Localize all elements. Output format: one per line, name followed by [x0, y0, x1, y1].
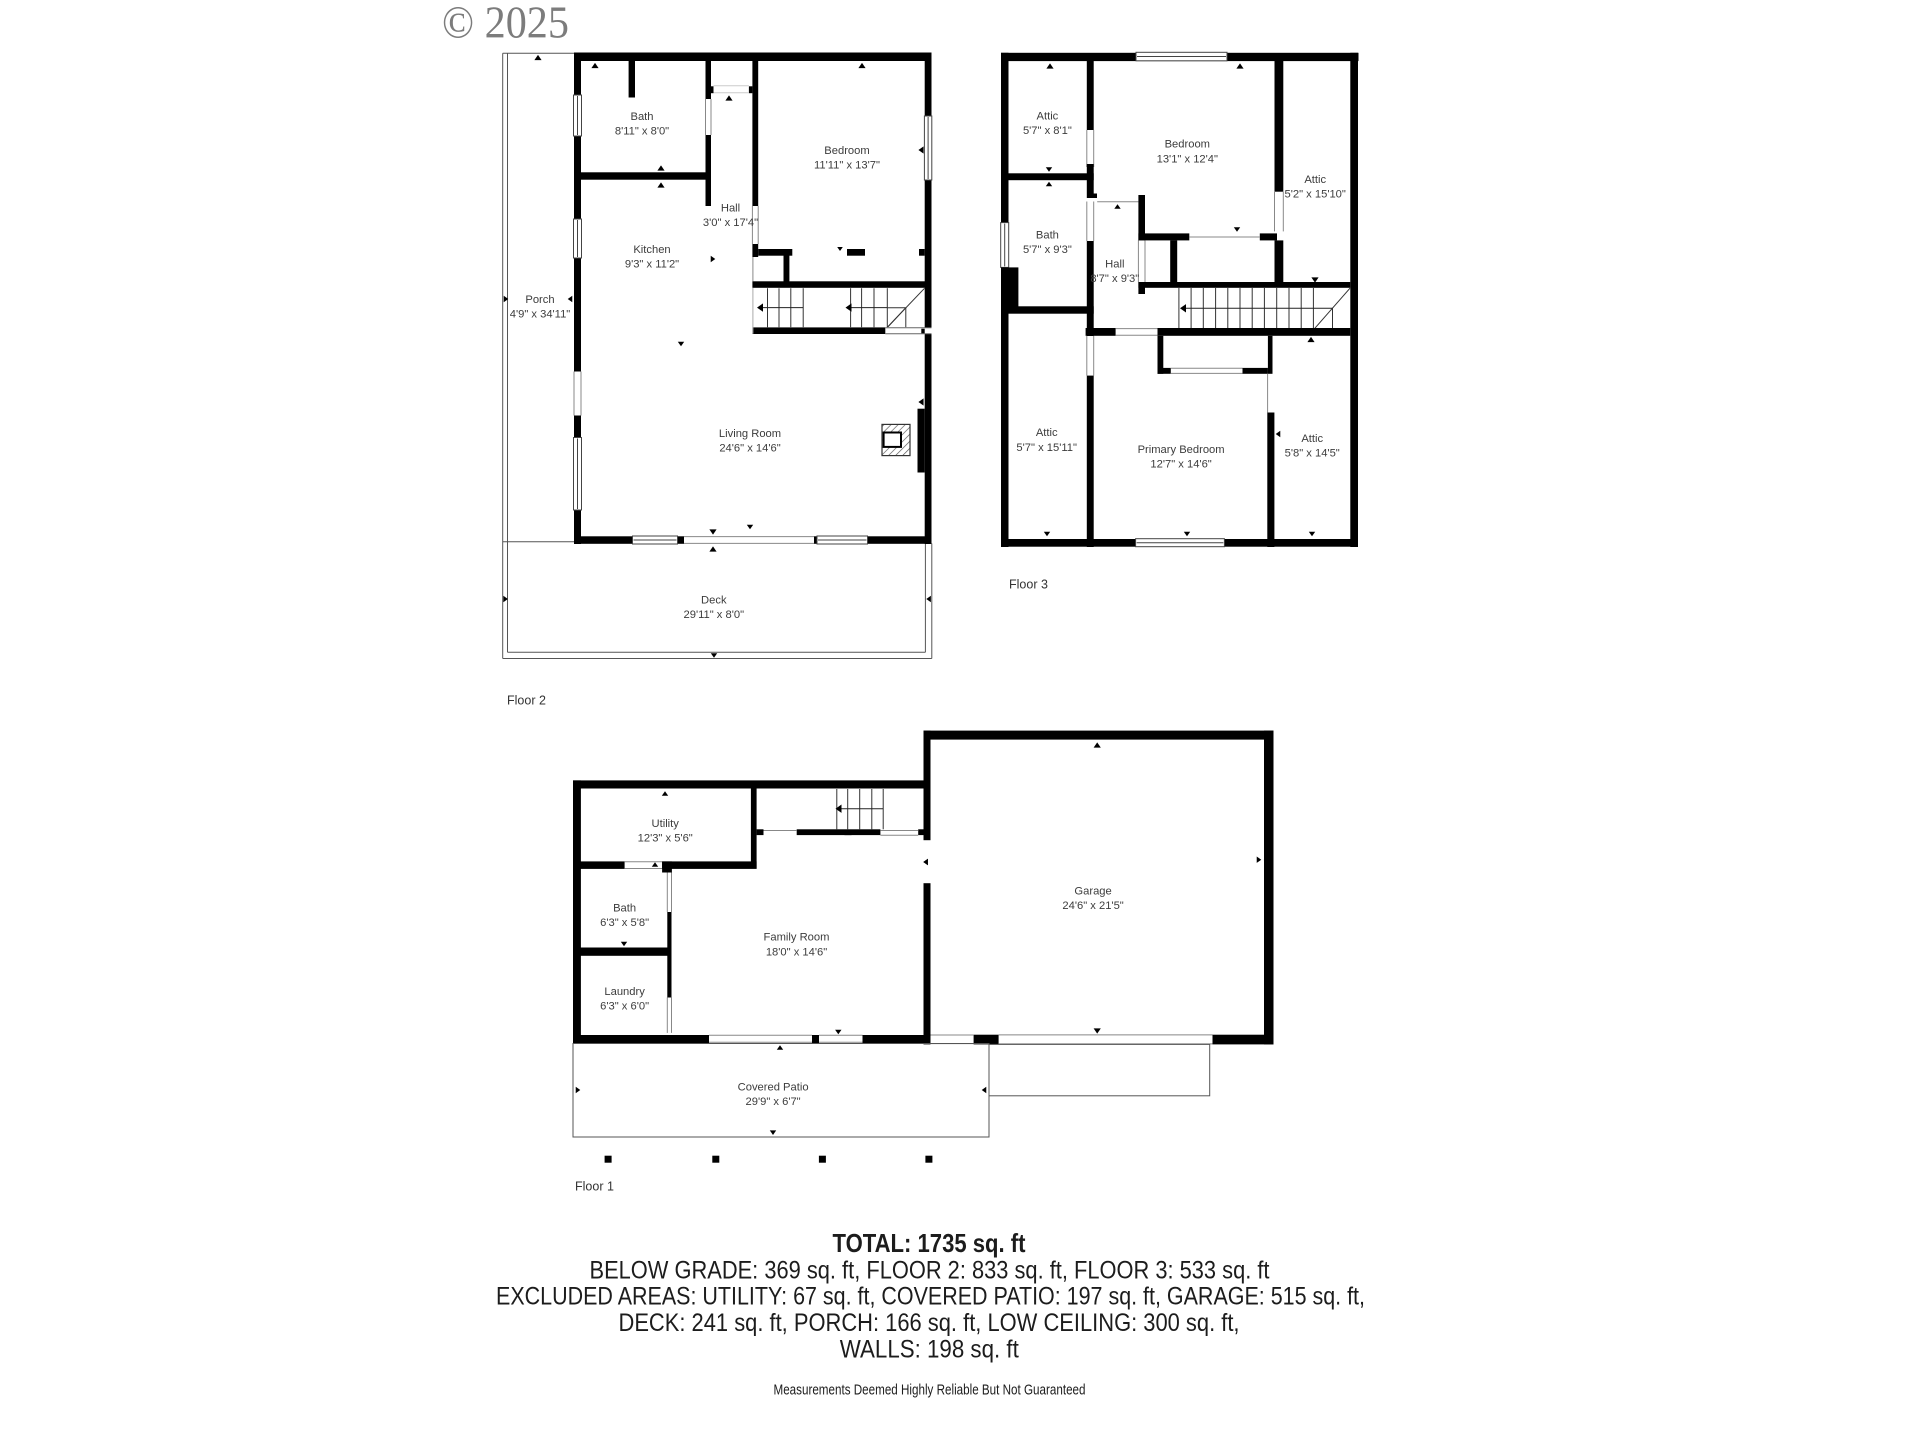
svg-text:4'9" x 34'11": 4'9" x 34'11" — [510, 309, 571, 321]
svg-text:29'11" x 8'0": 29'11" x 8'0" — [684, 609, 745, 621]
svg-text:5'7" x 9'3": 5'7" x 9'3" — [1023, 244, 1072, 256]
svg-text:Living Room: Living Room — [719, 428, 781, 440]
svg-text:Attic: Attic — [1036, 427, 1058, 439]
svg-text:Attic: Attic — [1304, 174, 1326, 186]
svg-text:9'3" x 11'2": 9'3" x 11'2" — [625, 259, 679, 271]
svg-text:5'7" x 15'11": 5'7" x 15'11" — [1016, 442, 1077, 454]
svg-text:12'7" x 14'6": 12'7" x 14'6" — [1150, 459, 1211, 471]
svg-text:11'11" x 13'7": 11'11" x 13'7" — [814, 160, 880, 172]
svg-text:Kitchen: Kitchen — [633, 244, 670, 256]
svg-text:EXCLUDED AREAS: UTILITY: 67 sq: EXCLUDED AREAS: UTILITY: 67 sq. ft, COVE… — [496, 1283, 1365, 1311]
svg-text:12'3" x 5'6": 12'3" x 5'6" — [638, 833, 693, 845]
svg-text:Bath: Bath — [1036, 229, 1059, 241]
svg-text:6'3" x 5'8": 6'3" x 5'8" — [600, 917, 649, 929]
svg-text:WALLS: 198 sq. ft: WALLS: 198 sq. ft — [840, 1336, 1019, 1364]
svg-text:Floor 1: Floor 1 — [575, 1180, 614, 1194]
svg-text:Bath: Bath — [613, 903, 636, 915]
svg-text:Primary Bedroom: Primary Bedroom — [1138, 444, 1225, 456]
svg-text:Attic: Attic — [1301, 433, 1323, 445]
svg-text:Utility: Utility — [652, 818, 680, 830]
svg-text:© 2025: © 2025 — [442, 0, 569, 48]
svg-text:Hall: Hall — [1105, 259, 1124, 271]
svg-text:Measurements Deemed Highly Rel: Measurements Deemed Highly Reliable But … — [774, 1383, 1086, 1399]
svg-text:6'3" x 6'0": 6'3" x 6'0" — [600, 1000, 649, 1012]
svg-text:DECK: 241 sq. ft, PORCH: 166 s: DECK: 241 sq. ft, PORCH: 166 sq. ft, LOW… — [619, 1309, 1240, 1337]
svg-text:BELOW GRADE: 369 sq. ft, FLOOR: BELOW GRADE: 369 sq. ft, FLOOR 2: 833 sq… — [590, 1257, 1270, 1285]
svg-text:5'8" x 14'5": 5'8" x 14'5" — [1285, 447, 1340, 459]
svg-text:5'7" x 8'1": 5'7" x 8'1" — [1023, 125, 1072, 137]
svg-text:8'11" x 8'0": 8'11" x 8'0" — [615, 126, 669, 138]
svg-text:Bedroom: Bedroom — [1165, 139, 1210, 151]
svg-text:Floor 3: Floor 3 — [1009, 578, 1048, 592]
svg-text:Floor 2: Floor 2 — [507, 694, 546, 708]
svg-text:Bath: Bath — [630, 111, 653, 123]
svg-text:24'6" x 14'6": 24'6" x 14'6" — [719, 443, 780, 455]
svg-text:Laundry: Laundry — [604, 986, 645, 998]
svg-text:Deck: Deck — [701, 595, 727, 607]
svg-text:Hall: Hall — [721, 203, 740, 215]
svg-text:Family Room: Family Room — [764, 932, 830, 944]
svg-text:Attic: Attic — [1037, 111, 1059, 123]
svg-text:Porch: Porch — [525, 294, 554, 306]
svg-text:5'2" x 15'10": 5'2" x 15'10" — [1285, 189, 1346, 201]
svg-text:29'9" x 6'7": 29'9" x 6'7" — [746, 1096, 801, 1108]
svg-text:Covered Patio: Covered Patio — [738, 1082, 809, 1094]
svg-text:13'1" x 12'4": 13'1" x 12'4" — [1157, 153, 1218, 165]
svg-text:Bedroom: Bedroom — [824, 145, 869, 157]
svg-text:8'7" x 9'3": 8'7" x 9'3" — [1090, 273, 1139, 285]
svg-text:3'0" x 17'4": 3'0" x 17'4" — [703, 217, 758, 229]
svg-text:24'6" x 21'5": 24'6" x 21'5" — [1062, 900, 1123, 912]
svg-text:TOTAL: 1735 sq. ft: TOTAL: 1735 sq. ft — [833, 1228, 1026, 1258]
svg-text:18'0" x 14'6": 18'0" x 14'6" — [766, 946, 827, 958]
svg-text:Garage: Garage — [1074, 885, 1111, 897]
